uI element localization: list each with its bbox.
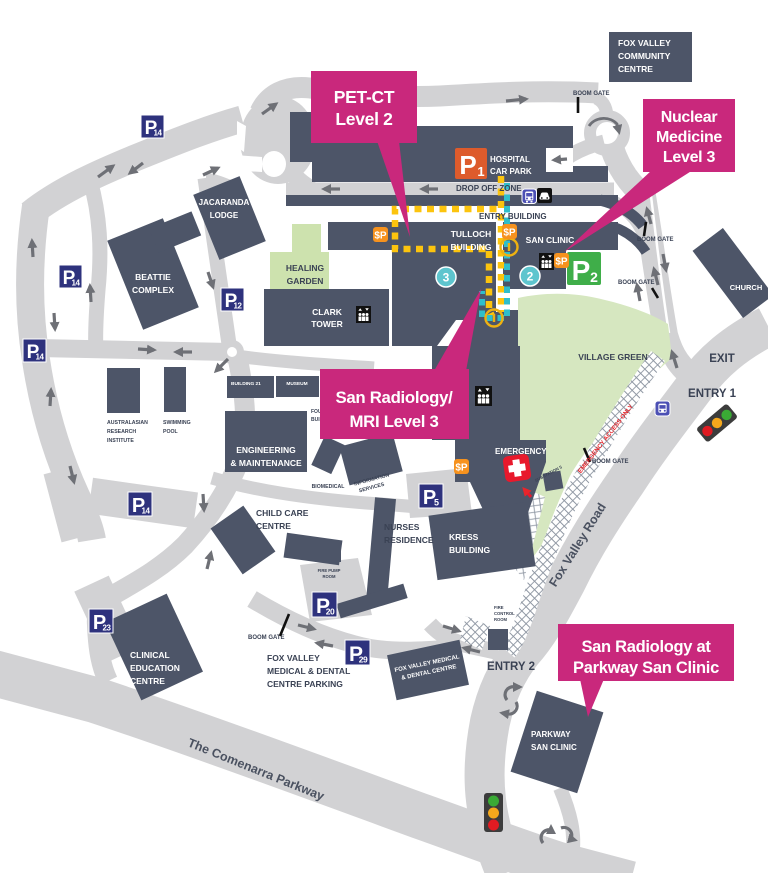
- svg-text:FOX VALLEY: FOX VALLEY: [618, 38, 671, 48]
- svg-text:ENTRY 1: ENTRY 1: [688, 388, 737, 400]
- svg-text:MRI Level 3: MRI Level 3: [349, 412, 438, 431]
- svg-text:HEALING: HEALING: [286, 263, 325, 273]
- svg-text:BIOMEDICAL: BIOMEDICAL: [312, 484, 346, 490]
- svg-text:NURSES: NURSES: [384, 522, 420, 532]
- svg-text:SAN CLINIC: SAN CLINIC: [531, 743, 577, 752]
- svg-text:P: P: [572, 255, 591, 286]
- svg-text:HOSPITAL: HOSPITAL: [490, 155, 530, 164]
- svg-text:BUILDING 21: BUILDING 21: [231, 381, 261, 387]
- svg-text:FIRE PUMP: FIRE PUMP: [318, 568, 341, 573]
- svg-text:P: P: [459, 150, 476, 180]
- svg-text:Parkway San Clinic: Parkway San Clinic: [573, 659, 719, 677]
- svg-text:LODGE: LODGE: [210, 211, 239, 220]
- svg-text:ENTRY BUILDING: ENTRY BUILDING: [479, 212, 547, 221]
- svg-text:14: 14: [142, 507, 151, 516]
- svg-text:COMPLEX: COMPLEX: [132, 285, 174, 295]
- svg-text:14: 14: [72, 279, 81, 288]
- svg-text:& MAINTENANCE: & MAINTENANCE: [230, 458, 302, 468]
- svg-text:SWIMMING: SWIMMING: [163, 420, 191, 426]
- svg-text:Level 2: Level 2: [335, 109, 393, 129]
- svg-text:CONTROL: CONTROL: [494, 611, 515, 616]
- svg-text:CENTRE PARKING: CENTRE PARKING: [267, 679, 343, 689]
- svg-text:$P: $P: [503, 228, 516, 239]
- svg-text:ENGINEERING: ENGINEERING: [236, 445, 296, 455]
- svg-text:KRESS: KRESS: [449, 532, 479, 542]
- svg-text:MUSEUM: MUSEUM: [286, 381, 307, 387]
- svg-text:EXIT: EXIT: [709, 353, 735, 365]
- svg-text:RESIDENCE: RESIDENCE: [384, 535, 434, 545]
- svg-text:COMMUNITY: COMMUNITY: [618, 51, 671, 61]
- svg-text:2: 2: [590, 269, 598, 285]
- svg-text:JACARANDA: JACARANDA: [199, 198, 250, 207]
- svg-text:EDUCATION: EDUCATION: [130, 663, 180, 673]
- svg-text:BOOM GATE: BOOM GATE: [637, 237, 674, 243]
- svg-text:$P: $P: [555, 257, 568, 268]
- svg-text:5: 5: [434, 498, 439, 508]
- svg-text:CLARK: CLARK: [312, 307, 343, 317]
- svg-text:29: 29: [359, 655, 368, 665]
- svg-text:Level 3: Level 3: [663, 149, 716, 166]
- svg-text:CENTRE: CENTRE: [130, 676, 165, 686]
- svg-text:BOOM GATE: BOOM GATE: [592, 459, 629, 465]
- svg-text:14: 14: [154, 129, 163, 138]
- svg-text:San Radiology at: San Radiology at: [581, 638, 711, 656]
- svg-text:CAR PARK: CAR PARK: [490, 167, 532, 176]
- svg-text:ROOM: ROOM: [322, 574, 336, 579]
- svg-text:MEDICAL & DENTAL: MEDICAL & DENTAL: [267, 666, 350, 676]
- svg-text:SAN CLINIC: SAN CLINIC: [526, 235, 575, 245]
- svg-text:POOL: POOL: [163, 429, 179, 435]
- svg-text:BOOM GATE: BOOM GATE: [573, 91, 610, 97]
- svg-text:BUILDING: BUILDING: [450, 242, 491, 252]
- svg-text:CENTRE: CENTRE: [256, 521, 291, 531]
- svg-text:RESEARCH: RESEARCH: [107, 429, 136, 435]
- svg-text:12: 12: [234, 302, 243, 311]
- svg-text:FIRE: FIRE: [494, 605, 504, 610]
- svg-text:Nuclear: Nuclear: [661, 109, 718, 126]
- svg-text:BUILDING: BUILDING: [449, 545, 490, 555]
- svg-text:CHURCH: CHURCH: [730, 283, 763, 292]
- svg-text:23: 23: [103, 624, 112, 633]
- svg-text:BEATTIE: BEATTIE: [135, 272, 171, 282]
- svg-text:GARDEN: GARDEN: [287, 276, 324, 286]
- svg-text:1: 1: [477, 164, 484, 179]
- svg-text:INSTITUTE: INSTITUTE: [107, 438, 134, 444]
- svg-text:20: 20: [326, 607, 335, 617]
- svg-text:ROOM: ROOM: [494, 617, 508, 622]
- svg-text:CHILD CARE: CHILD CARE: [256, 508, 309, 518]
- svg-text:TULLOCH: TULLOCH: [451, 229, 492, 239]
- svg-text:DROP OFF ZONE: DROP OFF ZONE: [456, 184, 522, 193]
- svg-text:PET-CT: PET-CT: [334, 87, 395, 107]
- svg-text:BOOM GATE: BOOM GATE: [248, 635, 285, 641]
- svg-text:FOX VALLEY: FOX VALLEY: [267, 653, 320, 663]
- svg-text:San Radiology/: San Radiology/: [335, 388, 453, 407]
- svg-text:Medicine: Medicine: [656, 129, 722, 146]
- svg-text:ENTRY 2: ENTRY 2: [487, 661, 535, 673]
- svg-text:2: 2: [527, 270, 534, 284]
- svg-text:TOWER: TOWER: [311, 319, 342, 329]
- svg-text:14: 14: [36, 353, 45, 362]
- svg-text:3: 3: [443, 271, 450, 285]
- svg-text:CLINICAL: CLINICAL: [130, 650, 170, 660]
- svg-text:$P: $P: [455, 463, 468, 474]
- svg-text:PARKWAY: PARKWAY: [531, 730, 571, 739]
- svg-text:AUSTRALASIAN: AUSTRALASIAN: [107, 420, 148, 426]
- svg-text:$P: $P: [374, 231, 387, 242]
- svg-text:BOOM GATE: BOOM GATE: [618, 280, 655, 286]
- svg-text:VILLAGE GREEN: VILLAGE GREEN: [578, 352, 647, 362]
- svg-text:CENTRE: CENTRE: [618, 64, 653, 74]
